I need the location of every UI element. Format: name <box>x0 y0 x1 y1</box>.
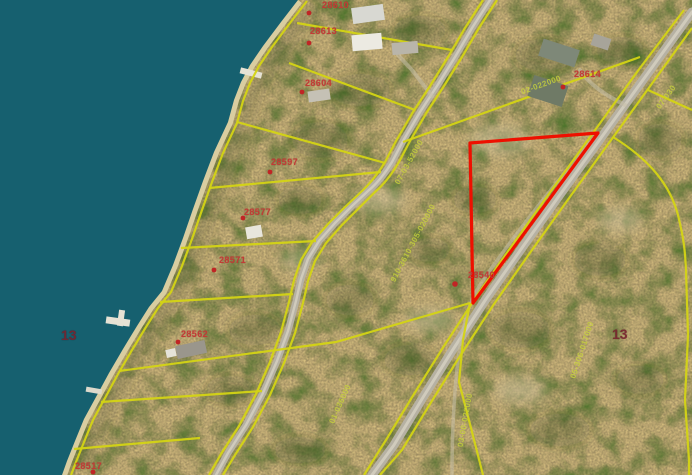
parcel-point-marker <box>268 170 273 175</box>
parcel-point-marker <box>307 41 312 46</box>
parcel-point-marker <box>307 11 312 16</box>
parcel-point-marker <box>176 340 181 345</box>
parcel-point-marker <box>212 268 217 273</box>
map-canvas[interactable]: 2861028613286042859728577285712856228517… <box>0 0 692 475</box>
parcel-point-marker <box>452 281 458 287</box>
parcel-point-marker <box>300 90 305 95</box>
building <box>392 41 419 55</box>
aerial-basemap <box>0 0 692 475</box>
parcel-point-marker <box>561 85 566 90</box>
building <box>351 33 382 52</box>
parcel-point-marker <box>91 470 96 475</box>
parcel-point-marker <box>241 216 246 221</box>
